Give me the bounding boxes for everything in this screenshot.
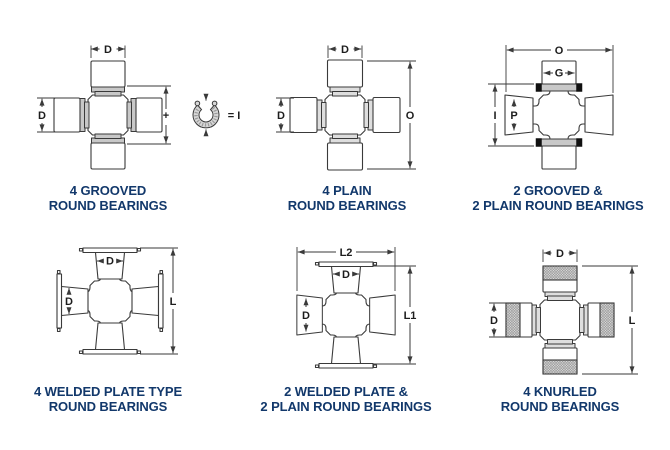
cross-4-plain (290, 60, 400, 170)
caption-line-2: 2 PLAIN ROUND BEARINGS (446, 198, 670, 213)
dim-label-top-d: D (341, 44, 349, 56)
diagrams-canvas: D D + = I D D (0, 0, 670, 450)
dim-label-l1: L1 (404, 310, 417, 322)
dim-label-cap-left-d: D (302, 310, 310, 322)
caption-line-1: 2 GROOVED & (446, 183, 670, 198)
bearing-cap-right-plain (585, 95, 613, 135)
caption-4-plain: 4 PLAIN ROUND BEARINGS (235, 183, 459, 213)
bearing-cap-bottom (91, 134, 125, 169)
dim-label-left-d: D (490, 315, 498, 327)
caption-4-grooved: 4 GROOVED ROUND BEARINGS (0, 183, 220, 213)
caption-line-2: ROUND BEARINGS (235, 198, 459, 213)
bearing-cap-bottom-grooved (536, 139, 582, 170)
figure-4-welded-plate-round-bearings: D D L (57, 248, 178, 354)
cross-body (533, 293, 587, 347)
dim-label-top-d: D (556, 248, 564, 260)
dim-label-plus: + (163, 110, 169, 122)
bearing-cap-left (54, 98, 89, 132)
bearing-cap-left-plain (505, 95, 533, 135)
caption-line-1: 4 PLAIN (235, 183, 459, 198)
dim-label-top-d: D (104, 44, 112, 56)
figure-2-grooved-2-plain-round-bearings: O G I P (488, 45, 613, 169)
bearing-cap-right (580, 303, 615, 337)
figure-4-grooved-round-bearings: D D + = I (37, 44, 240, 169)
dim-label-ring-equals-i: = I (228, 110, 241, 122)
dim-label-l: L (629, 315, 636, 327)
dim-label-cap-d: D (106, 256, 114, 268)
bearing-cap-top (91, 61, 125, 96)
bearing-cap-left (290, 98, 326, 133)
dim-label-left-d: D (277, 110, 285, 122)
caption-line-1: 2 WELDED PLATE & (234, 384, 458, 399)
dim-label-i: I (493, 110, 496, 122)
cross-body (319, 288, 373, 342)
caption-line-2: ROUND BEARINGS (448, 399, 670, 414)
caption-line-1: 4 KNURLED (448, 384, 670, 399)
caption-4-knurled: 4 KNURLED ROUND BEARINGS (448, 384, 670, 414)
figure-2-welded-2-plain-round-bearings: L2 D D L1 (297, 247, 417, 368)
figure-4-plain-round-bearings: D D O (276, 44, 416, 170)
dim-label-cap-d: D (342, 269, 350, 281)
bearing-cap-top (328, 60, 363, 96)
dim-label-o: O (555, 45, 564, 57)
cross-body (532, 88, 586, 142)
caption-line-1: 4 GROOVED (0, 183, 220, 198)
figure-4-knurled-round-bearings: D D L (489, 248, 638, 374)
dim-label-p: P (510, 110, 517, 122)
dim-label-o: O (406, 110, 415, 122)
bearing-cap-top (543, 266, 577, 301)
bearing-cap-left (506, 303, 541, 337)
caption-2-grooved-2-plain: 2 GROOVED & 2 PLAIN ROUND BEARINGS (446, 183, 670, 213)
bearing-cap-right-plain (370, 295, 395, 335)
bearing-cap-right (127, 98, 162, 132)
bearing-cap-bottom (543, 340, 577, 375)
bearing-diagram-sheet: D D + = I D D (0, 0, 670, 450)
dim-label-l2: L2 (340, 247, 353, 259)
cross-4-knurled (506, 266, 614, 374)
cross-body (83, 274, 137, 328)
bearing-cap-bottom (80, 323, 141, 354)
caption-4-welded-plate: 4 WELDED PLATE TYPE ROUND BEARINGS (0, 384, 220, 414)
caption-line-2: ROUND BEARINGS (0, 399, 220, 414)
caption-line-2: ROUND BEARINGS (0, 198, 220, 213)
bearing-cap-bottom (328, 134, 363, 170)
bearing-cap-right (132, 271, 163, 332)
cross-4-grooved (54, 61, 162, 169)
dim-label-left-d: D (38, 110, 46, 122)
snap-ring-icon (193, 95, 219, 135)
dim-label-g: G (555, 68, 564, 80)
bearing-cap-right (364, 98, 400, 133)
caption-line-1: 4 WELDED PLATE TYPE (0, 384, 220, 399)
caption-2-welded-2-plain: 2 WELDED PLATE & 2 PLAIN ROUND BEARINGS (234, 384, 458, 414)
dim-label-cap-left-d: D (65, 296, 73, 308)
dim-label-l: L (170, 296, 177, 308)
caption-line-2: 2 PLAIN ROUND BEARINGS (234, 399, 458, 414)
bearing-cap-bottom-welded (316, 337, 377, 368)
